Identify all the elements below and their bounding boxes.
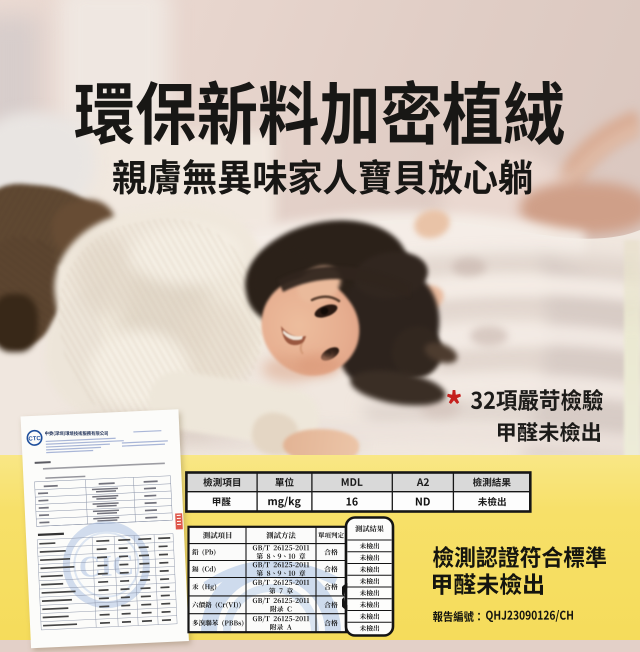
svg-text:CTC: CTC: [28, 436, 41, 443]
